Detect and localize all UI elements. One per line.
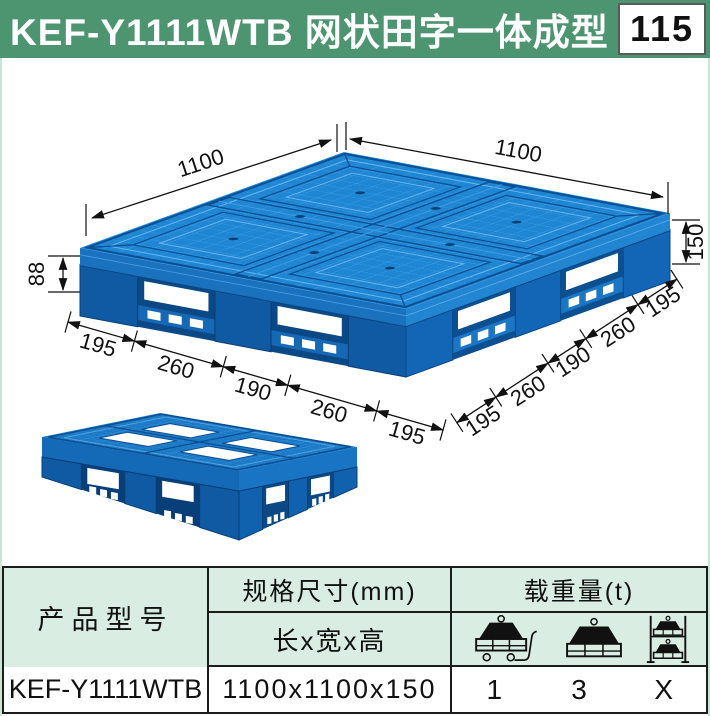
size-header: 规格尺寸(mm): [209, 568, 452, 613]
front-segment-label: 195: [386, 416, 428, 450]
load-type-icons: [452, 613, 706, 667]
spec-table: 产品型号 规格尺寸(mm) 载重量(t) 长x宽x高: [2, 566, 708, 714]
header-bar: KEF-Y1111WTB 网状田字一体成型 115: [0, 0, 710, 58]
product-model-header: 产品型号: [4, 568, 209, 667]
right-segment-label: 260: [506, 370, 550, 411]
dynamic-load-value: 1: [452, 674, 537, 706]
dim-height-label: 150: [683, 224, 708, 261]
load-values: 1 3 X: [452, 667, 706, 712]
front-segment-label: 260: [308, 394, 350, 428]
pallet-diagram: 1100 1100 150 88: [0, 58, 710, 566]
front-segment-label: 190: [232, 372, 274, 406]
static-load-icon: [563, 614, 625, 664]
dynamic-load-icon: [468, 614, 542, 664]
racking-load-icon: [646, 614, 690, 664]
product-model-value: KEF-Y1111WTB: [4, 667, 209, 712]
right-segment-label: 195: [461, 400, 505, 441]
page-title: KEF-Y1111WTB 网状田字一体成型: [0, 2, 609, 56]
page-number-box: 115: [618, 3, 706, 55]
dim-fork-height-label: 88: [24, 262, 49, 286]
size-sub-header: 长x宽x高: [209, 613, 452, 667]
static-load-value: 3: [537, 674, 622, 706]
size-value: 1100x1100x150: [209, 667, 452, 712]
page-number: 115: [630, 8, 694, 50]
load-header: 载重量(t): [452, 568, 706, 613]
right-segment-label: 260: [596, 311, 640, 352]
right-segment-label: 190: [551, 341, 595, 382]
racking-load-value: X: [621, 674, 706, 706]
small-pallet-illustration: [42, 413, 357, 540]
dim-top-right-label: 1100: [493, 134, 544, 167]
product-sheet-page: KEF-Y1111WTB 网状田字一体成型 115: [0, 0, 710, 716]
front-segment-label: 195: [77, 328, 119, 362]
main-pallet-illustration: 1100 1100 150 88: [24, 122, 708, 540]
front-segment-label: 260: [155, 350, 197, 384]
